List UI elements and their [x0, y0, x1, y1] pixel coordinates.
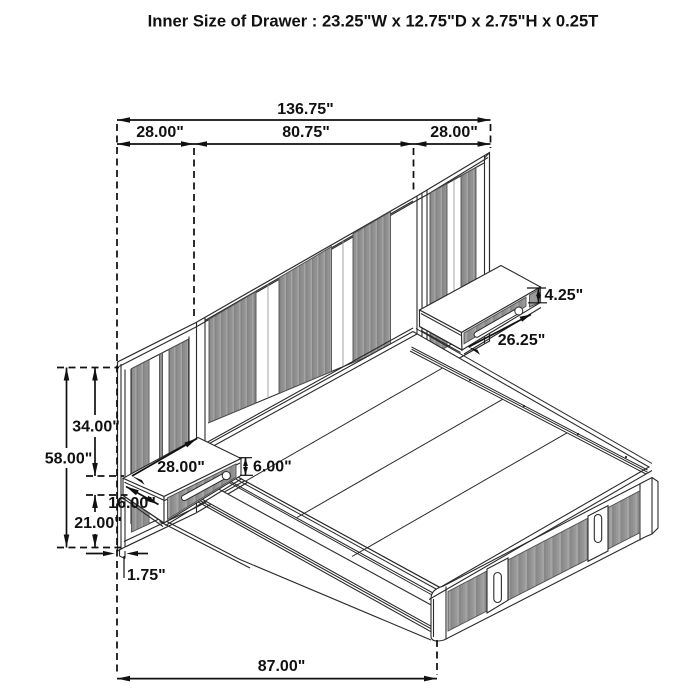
svg-text:28.00": 28.00": [157, 459, 205, 476]
svg-text:34.00": 34.00": [72, 419, 120, 436]
svg-text:28.00": 28.00": [430, 124, 478, 141]
svg-text:16.00": 16.00": [108, 495, 156, 512]
svg-text:26.25": 26.25": [498, 332, 546, 349]
svg-text:Inner Size of Drawer : 23.25"W: Inner Size of Drawer : 23.25"W x 12.75"D…: [148, 12, 599, 31]
svg-text:28.00": 28.00": [136, 124, 184, 141]
svg-text:1.75": 1.75": [127, 567, 166, 584]
svg-text:21.00": 21.00": [74, 515, 122, 532]
svg-text:87.00": 87.00": [258, 658, 306, 675]
svg-text:6.00": 6.00": [253, 459, 292, 476]
svg-text:58.00": 58.00": [45, 451, 93, 468]
svg-text:4.25": 4.25": [545, 287, 584, 304]
svg-text:80.75": 80.75": [282, 124, 330, 141]
svg-text:136.75": 136.75": [277, 101, 334, 118]
